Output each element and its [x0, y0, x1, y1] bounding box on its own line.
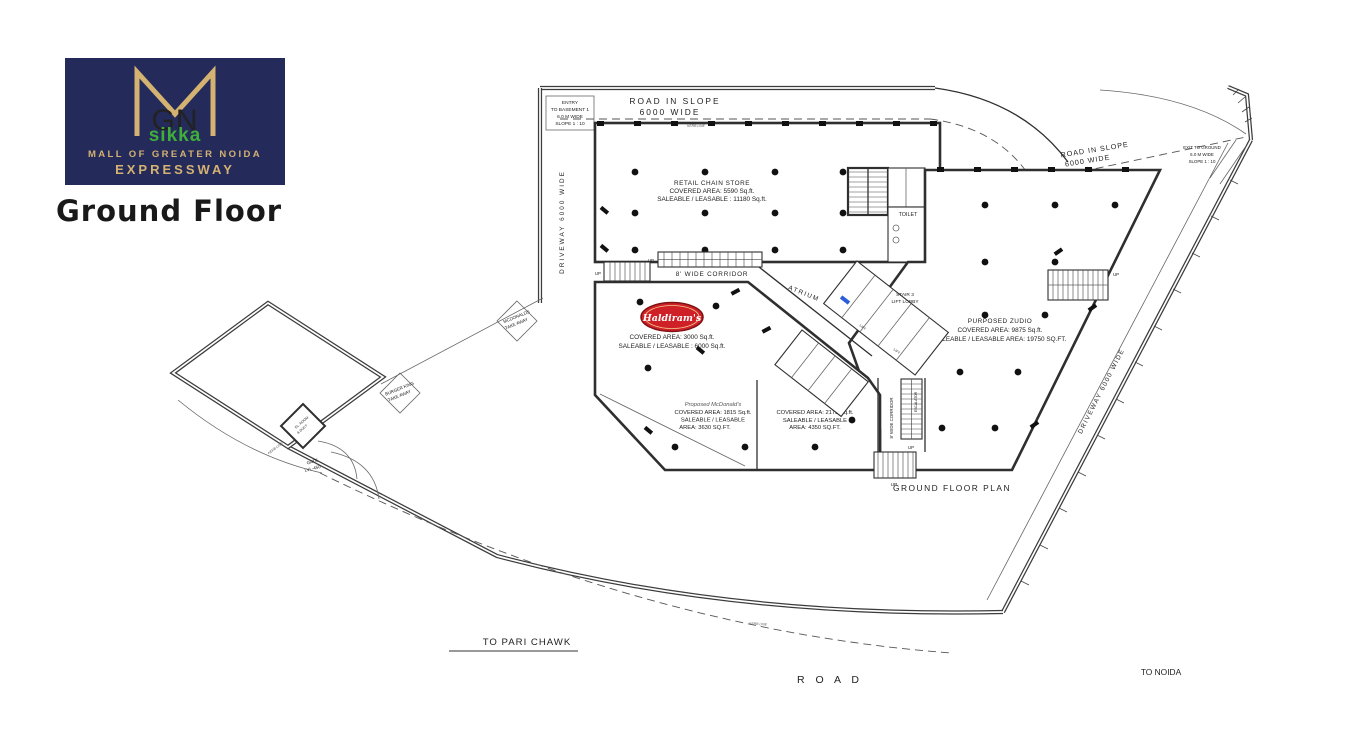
haldirams-logo-text: Haldiram's	[642, 313, 702, 324]
mcdonalds-name: Proposed McDonald's	[685, 402, 742, 408]
up-label: UP	[595, 271, 601, 276]
retail-store-covered: COVERED AREA: 5590 Sq.ft.	[670, 188, 755, 195]
retail-store-saleable: SALEABLE / LEASABLE : 11180 Sq.ft.	[657, 196, 767, 203]
escalator-label: ESCALATOR	[914, 391, 918, 412]
parking-area	[173, 298, 543, 499]
mcdonalds-saleable-line1: SALEABLE / LEASABLE	[681, 418, 745, 424]
plan-captions: GROUND FLOOR PLAN TO PARI CHAWK R O A D …	[449, 483, 1182, 686]
driveway-left-label: DRIVEWAY 6000 WIDE	[559, 170, 566, 274]
floor-plan: EL. ROOM & DUCT MCDONALDS TAKE AWAY BURG…	[0, 0, 1360, 738]
up-label: UP	[1113, 272, 1119, 277]
mcdonalds-takeaway-kiosk: MCDONALDS TAKE AWAY	[497, 301, 537, 341]
stair-lobby-line2: LIFT LOBBY	[891, 299, 919, 305]
kerb-line-label: KERB LINE	[749, 622, 768, 627]
to-noida-label: TO NOIDA	[1141, 667, 1182, 677]
haldirams-covered: COVERED AREA: 3000 Sq.ft.	[630, 334, 715, 341]
zudio-stair: UP	[1048, 270, 1119, 300]
entry-basement-line2: TO BASEMENT 1	[551, 107, 590, 113]
top-road-line1: ROAD IN SLOPE	[629, 96, 720, 106]
stair-lobby-line1: STAIR 3	[896, 292, 914, 298]
burger-king-takeaway-kiosk: BURGER KING TAKE AWAY	[380, 373, 420, 413]
zudio-saleable: SALEABLE / LEASABLE AREA: 19750 SQ.FT.	[934, 336, 1067, 343]
exit-ground-line2: 6.0 M WIDE	[1190, 152, 1214, 157]
haldirams-logo: Haldiram's	[641, 303, 703, 332]
mcdonalds-saleable-line2: AREA: 3630 SQ.FT.	[679, 425, 731, 431]
shop2-saleable-line1: SALEABLE / LEASABLE	[783, 418, 847, 424]
plan-caption: GROUND FLOOR PLAN	[893, 483, 1011, 493]
haldirams-saleable: SALEABLE / LEASABLE : 6000 Sq.ft.	[619, 343, 726, 350]
shop2-saleable-line2: AREA: 4350 SQ.FT.	[789, 425, 841, 431]
entry-basement-line3: 6.0 M WIDE	[557, 114, 583, 120]
corridor-label: 8' WIDE CORRIDOR	[676, 271, 749, 278]
road-label: R O A D	[797, 674, 863, 686]
to-pari-chawk-label: TO PARI CHAWK	[483, 637, 572, 648]
kerb-line-label: KERB LINE	[267, 441, 284, 455]
zudio-covered: COVERED AREA: 9875 Sq.ft.	[958, 327, 1043, 334]
entry-basement-line4: SLOPE 1 : 10	[555, 121, 585, 127]
corridor-vertical-label: 8' WIDE CORRIDOR	[889, 397, 894, 438]
kerb-line-label: KERB LINE	[687, 124, 705, 128]
entry-basement-line1: ENTRY	[562, 100, 579, 106]
mcdonalds-covered: COVERED AREA: 1815 Sq.ft.	[674, 410, 751, 416]
exit-ground-line3: SLOPE 1 : 10	[1189, 159, 1216, 164]
up-label: UP	[908, 445, 914, 450]
zudio-name: PURPOSED ZUDIO	[968, 318, 1033, 325]
retail-store-name: RETAIL CHAIN STORE	[674, 180, 750, 187]
top-road-line2: 6000 WIDE	[640, 107, 701, 117]
exit-ground-line1: EXIT TO GROUND	[1183, 145, 1221, 150]
toilet-label: TOILET	[899, 212, 918, 218]
